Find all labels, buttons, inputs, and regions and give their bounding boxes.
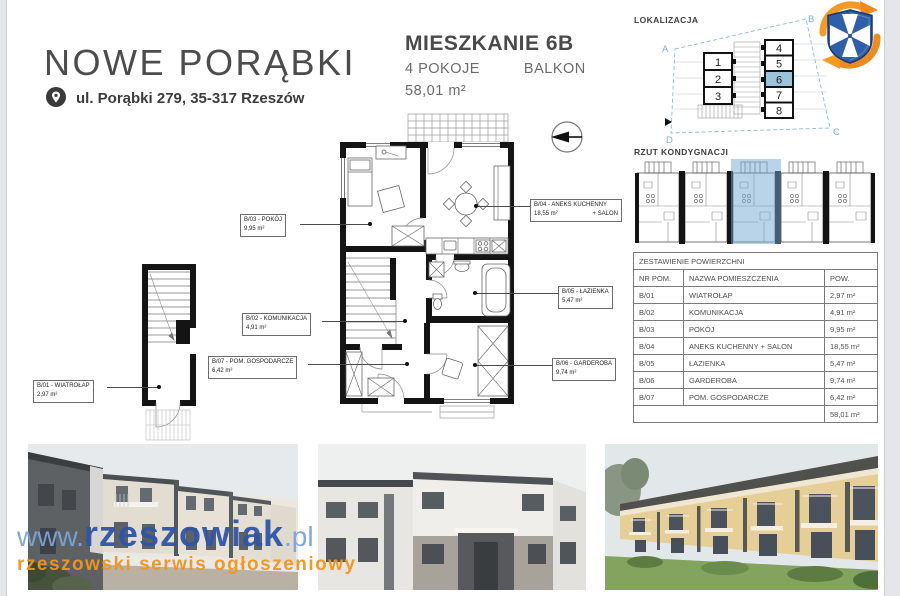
room-area: 2,97 m² [37,391,90,400]
room-id: B/05 - ŁAZIENKA [562,288,609,297]
cell-nr: B/06 [634,372,684,389]
cell-area: 5,47 m² [825,355,878,372]
watermark-tld: .pl [284,521,314,552]
corner-b: B [808,14,814,25]
corner-c: C [833,127,840,138]
table-row: B/01WIATROŁAP2,97 m² [634,287,878,304]
room-id: B/03 - POKÓJ [244,216,282,225]
room-id: B/04 - ANEKS KUCHENNY [534,201,618,210]
cell-area: 6,42 m² [825,389,878,406]
room-area: 9,95 m² [244,225,282,234]
label-b02: B/02 - KOMUNIKACJA 4,91 m² [242,313,311,336]
room-id: B/02 - KOMUNIKACJA [246,315,307,324]
table-row: B/03POKÓJ9,95 m² [634,321,878,338]
page-right-margin [884,0,900,596]
ground-floor-plan [138,262,200,442]
cell-name: GARDEROBA [684,372,825,389]
unit-4: 4 [776,43,782,55]
col-header-pow: POW. [825,270,878,287]
stairs [346,258,396,344]
table-total-row: 58,01 m² [634,406,878,423]
label-b07: B/07 - POM. GOSPODARCZE 6,42 m² [208,356,297,379]
balcony [408,114,508,142]
room-area: 5,47 m² [562,297,609,306]
photo-render-3 [605,444,878,590]
cell-area: 9,74 m² [825,372,878,389]
room-id: B/06 - GARDEROBA [556,360,612,369]
flyer-page: NOWE PORĄBKI ul. Porąbki 279, 35-317 Rze… [0,0,900,596]
table-row: B/04ANEKS KUCHENNY + SALON18,55 m² [634,338,878,355]
room-area: 4,91 m² [246,324,307,333]
room-area: 6,42 m² [212,367,293,376]
apartment-feature: BALKON [524,61,586,77]
unit-5: 5 [776,59,782,71]
table-row: B/02KOMUNIKACJA4,91 m² [634,304,878,321]
unit-3: 3 [715,91,721,103]
watermark-brand: rzeszowiak [84,513,284,554]
unit-6: 6 [776,75,782,87]
cell-name: KOMUNIKACJA [684,304,825,321]
cell-name: POM. GOSPODARCZE [684,389,825,406]
total-area: 58,01 m² [825,406,878,423]
label-b06: B/06 - GARDEROBA 9,74 m² [552,358,616,381]
page-title: NOWE PORĄBKI [44,42,356,84]
cell-nr: B/02 [634,304,684,321]
floor-strip-plan [634,158,876,246]
label-b03: B/03 - POKÓJ 9,95 m² [240,214,286,237]
room-suffix: + SALON [592,210,618,219]
unit-2: 2 [715,74,721,86]
table-title: ZESTAWIENIE POWIERZCHNI [634,253,878,270]
unit-1: 1 [715,57,721,69]
total-spacer [634,406,825,423]
table-row: B/07POM. GOSPODARCZE6,42 m² [634,389,878,406]
cell-nr: B/07 [634,389,684,406]
watermark: www.rzeszowiak.pl rzeszowski serwis ogło… [17,516,357,574]
north-arrow-icon [546,116,588,158]
col-header-name: NAZWA POMIESZCZENIA [684,270,825,287]
corner-a: A [662,44,669,55]
room-id: B/07 - POM. GOSPODARCZE [212,358,293,367]
cell-area: 18,55 m² [825,338,878,355]
rzut-label: RZUT KONDYGNACJI [634,147,728,157]
cell-nr: B/05 [634,355,684,372]
address: ul. Porąbki 279, 35-317 Rzeszów [76,90,304,107]
entry-mat [146,410,190,440]
label-b01: B/01 - WIATROŁAP 2,97 m² [33,380,94,403]
photo-render-2 [318,444,586,590]
label-b05: B/05 - ŁAZIENKA 5,47 m² [558,286,613,309]
apartment-rooms: 4 POKOJE [405,61,480,77]
label-b04: B/04 - ANEKS KUCHENNY 18,55 m²+ SALON [530,199,622,222]
cell-area: 2,97 m² [825,287,878,304]
cell-name: WIATROŁAP [684,287,825,304]
rzeszowiak-logo [816,1,884,69]
corner-d: D [666,135,673,144]
main-floor-plan [332,112,522,422]
unit-8: 8 [776,106,782,118]
col-header-nr: NR POM. [634,270,684,287]
watermark-www: www. [17,521,84,552]
room-area: 9,74 m² [556,369,612,378]
table-row: B/06GARDEROBA9,74 m² [634,372,878,389]
watermark-tagline: rzeszowski serwis ogłoszeniowy [17,555,357,574]
cell-name: ANEKS KUCHENNY + SALON [684,338,825,355]
apartment-name: MIESZKANIE 6B [405,32,574,56]
room-id: B/01 - WIATROŁAP [37,382,90,391]
cell-area: 4,91 m² [825,304,878,321]
location-pin-icon [46,87,66,107]
cell-nr: B/01 [634,287,684,304]
cell-name: ŁAZIENKA [684,355,825,372]
cell-nr: B/04 [634,338,684,355]
cell-area: 9,95 m² [825,321,878,338]
room-area: 18,55 m² [534,210,558,219]
cell-name: POKÓJ [684,321,825,338]
cell-nr: B/03 [634,321,684,338]
page-left-margin [0,0,7,596]
highlighted-strip-unit [731,159,781,244]
unit-7: 7 [776,90,782,102]
table-row: B/05ŁAZIENKA5,47 m² [634,355,878,372]
apartment-area: 58,01 m² [405,83,466,99]
area-table: ZESTAWIENIE POWIERZCHNI NR POM. NAZWA PO… [633,252,878,423]
